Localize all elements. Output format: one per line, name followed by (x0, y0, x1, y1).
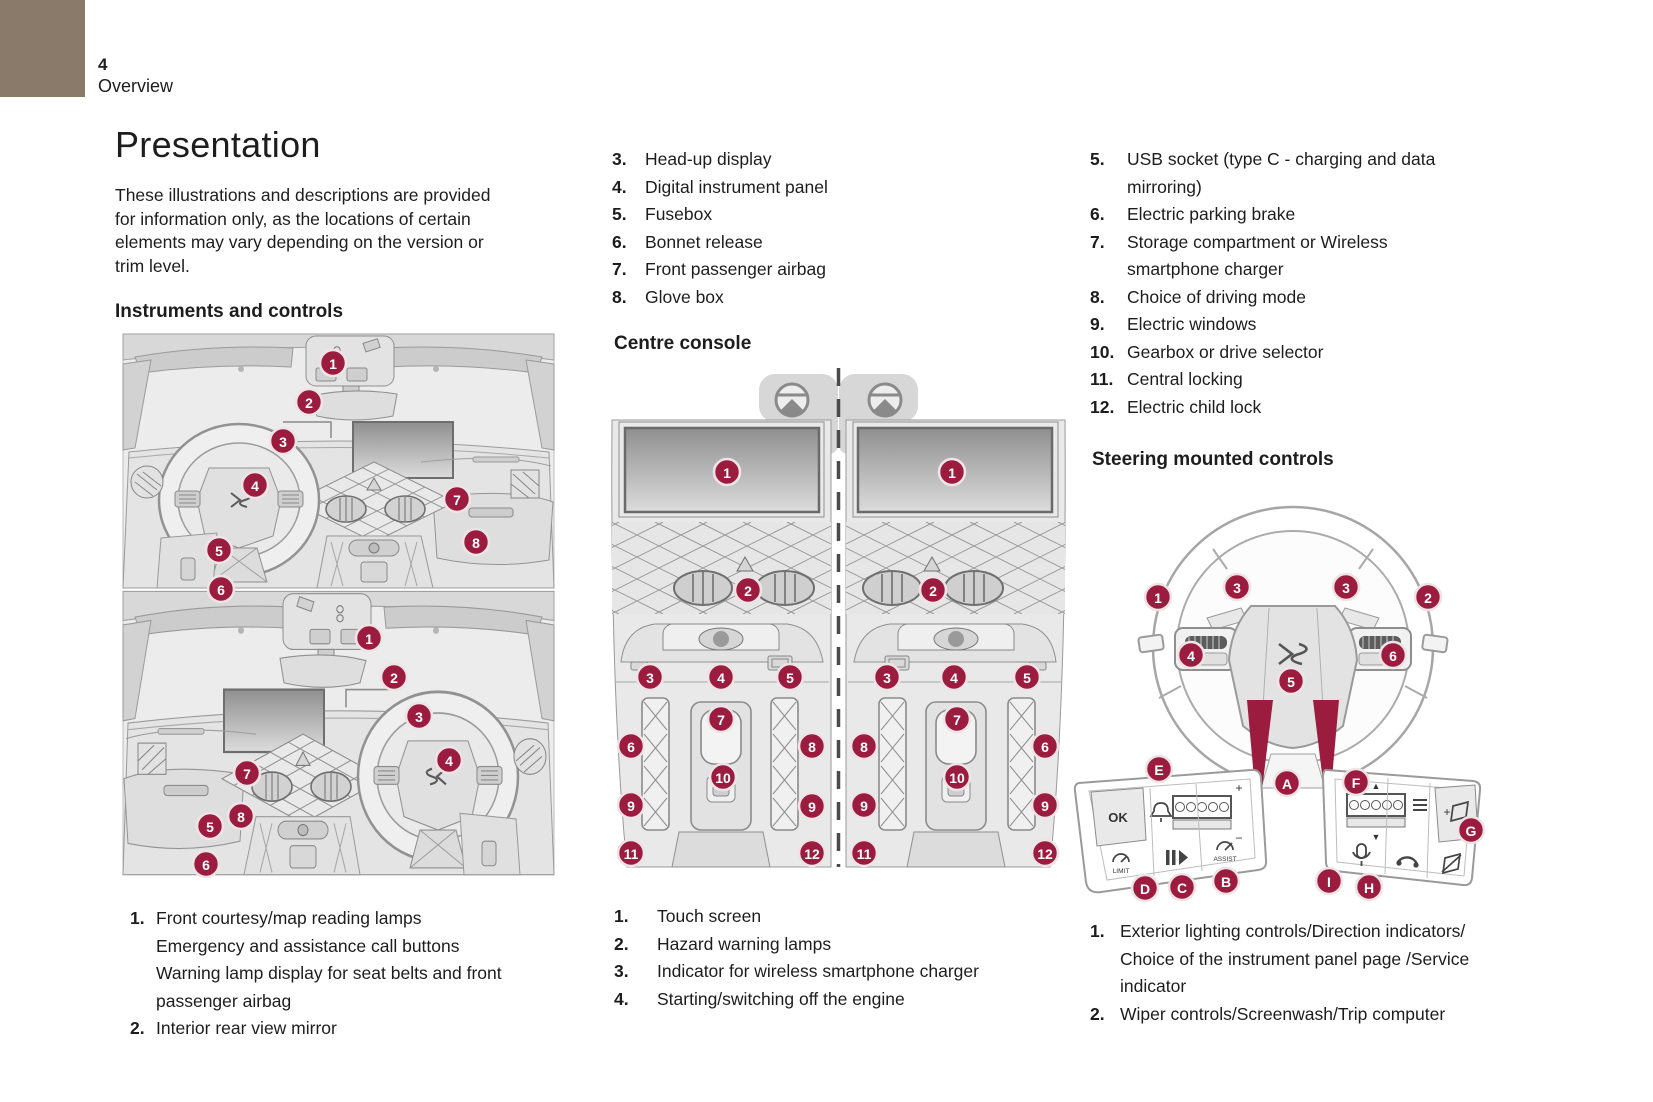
callout-label: 2 (390, 670, 398, 686)
legend-number: 4. (614, 986, 657, 1014)
dashboard-lhd-illustration (123, 334, 583, 588)
callout-label: 3 (279, 434, 287, 450)
callout-label: 10 (949, 770, 965, 786)
callout-label: 8 (237, 809, 245, 825)
page-title: Presentation (115, 124, 321, 166)
callout-label: 6 (217, 582, 225, 598)
callout-label: E (1154, 762, 1163, 778)
rotate-minus-icon: − (1235, 831, 1242, 845)
callout-label: 7 (953, 712, 961, 728)
item-text: Electric child lock (1127, 394, 1530, 422)
svg-text:+: + (1443, 805, 1450, 819)
callout-label: H (1364, 880, 1374, 896)
legend-item: 1. Front courtesy/map reading lamps Emer… (130, 905, 580, 1015)
callout-label: 6 (1041, 739, 1049, 755)
list-item: 4.Digital instrument panel (612, 174, 1042, 202)
callout-label: 12 (804, 846, 820, 862)
callout-label: 5 (215, 543, 223, 559)
callout-label: 1 (723, 465, 731, 481)
right-scroll-wheel (1347, 794, 1405, 816)
legend-text: Hazard warning lamps (657, 931, 1054, 959)
legend-text: Wiper controls/Screenwash/Trip computer (1120, 1001, 1540, 1029)
list-item: 11.Central locking (1090, 366, 1530, 394)
rotate-plus-icon: + (1235, 781, 1242, 795)
legend-item: 1.Touch screen (614, 903, 1054, 931)
manual-page: { "page": { "number": "4", "section": "O… (0, 0, 1653, 1102)
list-item: 8.Choice of driving mode (1090, 284, 1530, 312)
callout-label: 5 (786, 670, 794, 686)
scroll-up-icon: ▲ (1372, 781, 1381, 791)
left-scroll-wheel-lip (1173, 820, 1231, 829)
callout-label: D (1140, 881, 1150, 897)
legend-number: 1. (130, 905, 156, 1015)
callout-label: 6 (627, 739, 635, 755)
legend-text: Exterior lighting controls/Direction ind… (1120, 918, 1540, 1001)
item-number: 7. (1090, 229, 1127, 284)
item-text: Digital instrument panel (645, 174, 1042, 202)
callout-label: 2 (744, 583, 752, 599)
legend-text: Indicator for wireless smartphone charge… (657, 958, 1054, 986)
legend-item: 1. Exterior lighting controls/Direction … (1090, 918, 1540, 1001)
section-label: Overview (98, 76, 173, 98)
dashboard-rhd-illustration (94, 591, 554, 874)
list-item: 3.Head-up display (612, 146, 1042, 174)
callout-label: 9 (808, 799, 816, 815)
legend-number: 1. (1090, 918, 1120, 1001)
callout-label: 12 (1037, 846, 1053, 862)
item-text: Storage compartment or Wireless smartpho… (1127, 229, 1530, 284)
left-stalk (1138, 634, 1164, 652)
ok-button-label: OK (1108, 810, 1128, 825)
list-item: 10.Gearbox or drive selector (1090, 339, 1530, 367)
callout-label: 7 (243, 766, 251, 782)
callout-label: 2 (305, 395, 313, 411)
callout-label: A (1282, 776, 1292, 792)
callout-label: 9 (1041, 798, 1049, 814)
item-number: 4. (612, 174, 645, 202)
callout-label: 8 (808, 739, 816, 755)
heading-centre-console: Centre console (614, 333, 751, 355)
callout-label: 1 (365, 631, 373, 647)
callout-label: 11 (857, 846, 872, 862)
steering-legend: 1. Exterior lighting controls/Direction … (1090, 918, 1540, 1028)
callout-label: 3 (1342, 580, 1350, 596)
legend-item: 2. Interior rear view mirror (130, 1015, 580, 1043)
item-text: Electric windows (1127, 311, 1530, 339)
callout-label: 7 (453, 492, 461, 508)
callout-label: 10 (715, 770, 731, 786)
callout-label: 5 (1023, 670, 1031, 686)
item-number: 5. (1090, 146, 1127, 201)
instruments-legend: 1. Front courtesy/map reading lamps Emer… (130, 905, 580, 1043)
callout-label: 3 (415, 709, 423, 725)
right-scroll-wheel-lip (1347, 818, 1405, 827)
list-item: 6.Electric parking brake (1090, 201, 1530, 229)
centre-console-diagram: 12345678991011121234567899101112 (595, 362, 1065, 867)
callout-label: I (1327, 874, 1331, 890)
item-text: Front passenger airbag (645, 256, 1042, 284)
callout-label: 1 (948, 465, 956, 481)
callout-label: 2 (1424, 590, 1432, 606)
item-number: 8. (612, 284, 645, 312)
callout-label: 8 (860, 739, 868, 755)
callout-label: 2 (929, 583, 937, 599)
list-item: 6.Bonnet release (612, 229, 1042, 257)
left-scroll-wheel (1173, 796, 1231, 818)
callout-label: 7 (717, 712, 725, 728)
legend-number: 2. (614, 931, 657, 959)
callout-label: 5 (206, 819, 214, 835)
callout-label: 6 (1389, 648, 1397, 664)
item-text: Gearbox or drive selector (1127, 339, 1530, 367)
callout-label: 9 (627, 798, 635, 814)
item-number: 10. (1090, 339, 1127, 367)
corner-color-block (0, 0, 85, 97)
item-number: 9. (1090, 311, 1127, 339)
callout-label: 6 (202, 857, 210, 873)
list-item: 12.Electric child lock (1090, 394, 1530, 422)
callout-label: 3 (646, 670, 654, 686)
item-text: Glove box (645, 284, 1042, 312)
heading-steering-mounted-controls: Steering mounted controls (1092, 449, 1334, 471)
legend-item: 2. Wiper controls/Screenwash/Trip comput… (1090, 1001, 1540, 1029)
legend-text: Front courtesy/map reading lamps Emergen… (156, 905, 580, 1015)
callout-label: 4 (1187, 648, 1195, 664)
item-number: 8. (1090, 284, 1127, 312)
legend-number: 2. (1090, 1001, 1120, 1029)
callout-label: B (1221, 874, 1231, 890)
legend-text: Interior rear view mirror (156, 1015, 580, 1043)
instruments-and-controls-diagram: 12345678 12345678 (121, 330, 556, 878)
legend-number: 2. (130, 1015, 156, 1043)
item-number: 5. (612, 201, 645, 229)
item-text: Central locking (1127, 366, 1530, 394)
legend-item: 3.Indicator for wireless smartphone char… (614, 958, 1054, 986)
item-text: Electric parking brake (1127, 201, 1530, 229)
legend-text: Starting/switching off the engine (657, 986, 1054, 1014)
item-text: Fusebox (645, 201, 1042, 229)
intro-paragraph: These illustrations and descriptions are… (115, 184, 575, 278)
list-item: 7.Front passenger airbag (612, 256, 1042, 284)
scroll-down-icon: ▼ (1372, 832, 1381, 842)
heading-instruments-and-controls: Instruments and controls (115, 301, 343, 323)
callout-label: 1 (329, 356, 337, 372)
list-item: 5.USB socket (type C - charging and data… (1090, 146, 1530, 201)
item-number: 3. (612, 146, 645, 174)
legend-item: 2.Hazard warning lamps (614, 931, 1054, 959)
item-text: USB socket (type C - charging and data m… (1127, 146, 1530, 201)
callout-label: 4 (950, 670, 958, 686)
item-number: 6. (1090, 201, 1127, 229)
list-item: 7.Storage compartment or Wireless smartp… (1090, 229, 1530, 284)
console-items-list: 5.USB socket (type C - charging and data… (1090, 146, 1530, 421)
legend-number: 3. (614, 958, 657, 986)
svg-text:LIMIT: LIMIT (1113, 868, 1130, 875)
callout-label: 9 (860, 798, 868, 814)
callout-label: 3 (1233, 580, 1241, 596)
list-item: 8.Glove box (612, 284, 1042, 312)
callout-label: 4 (251, 478, 259, 494)
item-number: 7. (612, 256, 645, 284)
callout-label: C (1177, 880, 1187, 896)
callout-label: 4 (445, 753, 453, 769)
item-number: 11. (1090, 366, 1127, 394)
page-number: 4 (98, 56, 107, 73)
callout-label: 3 (883, 670, 891, 686)
callout-label: G (1466, 823, 1477, 839)
callout-label: 1 (1154, 590, 1162, 606)
callout-label: F (1352, 775, 1361, 791)
list-item: 9.Electric windows (1090, 311, 1530, 339)
console-legend: 1.Touch screen 2.Hazard warning lamps 3.… (614, 903, 1054, 1013)
item-text: Head-up display (645, 146, 1042, 174)
callout-label: 8 (472, 535, 480, 551)
legend-text: Touch screen (657, 903, 1054, 931)
item-text: Bonnet release (645, 229, 1042, 257)
callout-label: 5 (1287, 674, 1295, 690)
dashboard-items-list: 3.Head-up display 4.Digital instrument p… (612, 146, 1042, 311)
list-item: 5.Fusebox (612, 201, 1042, 229)
item-number: 6. (612, 229, 645, 257)
assist-label: ASSIST (1213, 856, 1236, 863)
item-text: Choice of driving mode (1127, 284, 1530, 312)
legend-item: 4.Starting/switching off the engine (614, 986, 1054, 1014)
legend-number: 1. (614, 903, 657, 931)
callout-label: 4 (717, 670, 725, 686)
steering-wheel-diagram: OK + − LIMIT ASSIST ▲ ▼ (1055, 478, 1495, 898)
right-stalk (1422, 634, 1448, 652)
callout-label: 11 (624, 846, 639, 862)
item-number: 12. (1090, 394, 1127, 422)
